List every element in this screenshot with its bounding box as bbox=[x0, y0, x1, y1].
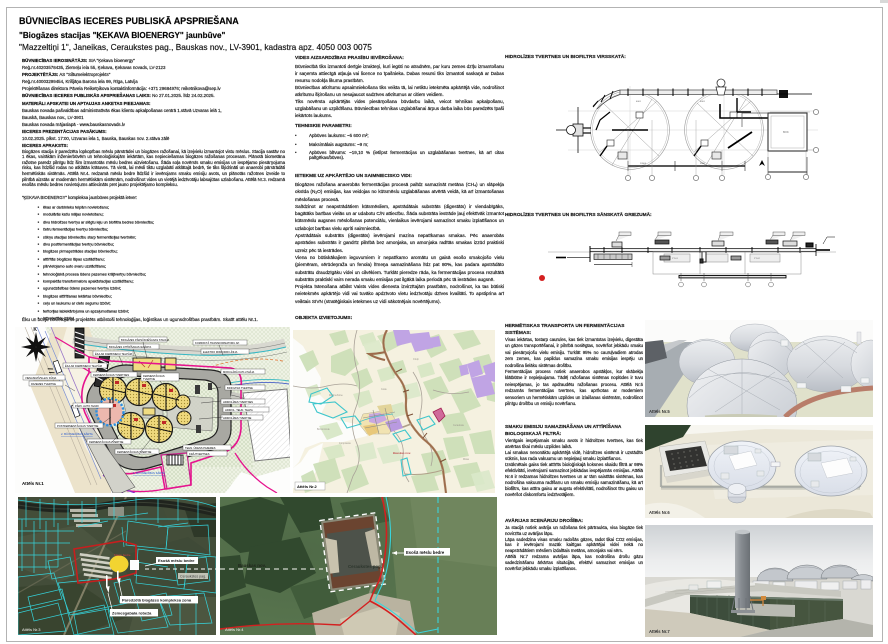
svg-text:Bauskas nov.: Bauskas nov. bbox=[238, 563, 266, 568]
svg-text:2. BŪVNIECĪBAS KĀRTA: 2. BŪVNIECĪBAS KĀRTA bbox=[61, 432, 93, 436]
svg-text:KOMPAKTĀ TRANSFORMATORU AP.: KOMPAKTĀ TRANSFORMATORU AP. bbox=[195, 341, 240, 345]
svg-text:TVERTNE: TVERTNE bbox=[143, 377, 155, 381]
svg-text:HIDROLĪZES TVERTNES: HIDROLĪZES TVERTNES bbox=[223, 400, 253, 404]
svg-text:FERMENTĀCIJAS TVERTNE: FERMENTĀCIJAS TVERTNE bbox=[117, 450, 152, 454]
svg-text:Esošā mēslu bedre: Esošā mēslu bedre bbox=[406, 550, 445, 555]
svg-text:K: K bbox=[33, 327, 37, 333]
svg-text:PT-01: PT-01 bbox=[672, 258, 679, 260]
svg-text:Attēls Nr.1: Attēls Nr.1 bbox=[22, 481, 44, 486]
svg-text:Attēls Nr.6: Attēls Nr.6 bbox=[649, 510, 670, 515]
svg-text:KRĀJTVERTNES: KRĀJTVERTNES bbox=[189, 452, 210, 456]
svg-text:BIOF.: BIOF. bbox=[783, 131, 790, 134]
svg-text:Cīruļi: Cīruļi bbox=[413, 358, 419, 361]
svg-text:Ceraukste: Ceraukste bbox=[453, 424, 465, 427]
svg-text:9000: 9000 bbox=[700, 163, 706, 165]
svg-text:MODULĀRĀ KATLU MĀJA: MODULĀRĀ KATLU MĀJA bbox=[223, 370, 254, 374]
svg-text:PAZEMES TVERTNE: PAZEMES TVERTNE bbox=[31, 382, 56, 386]
svg-text:1. BŪVNIECĪBAS KĀRTA: 1. BŪVNIECĪBAS KĀRTA bbox=[133, 471, 165, 475]
svg-text:4001: 4001 bbox=[636, 101, 642, 103]
svg-text:PT-02: PT-02 bbox=[754, 258, 761, 260]
svg-text:Mēslu bedre: Mēslu bedre bbox=[114, 553, 131, 557]
svg-text:Attēls Nr.3: Attēls Nr.3 bbox=[22, 627, 41, 632]
svg-text:Attēls Nr.5: Attēls Nr.5 bbox=[649, 409, 670, 414]
svg-text:Attēls Nr.2: Attēls Nr.2 bbox=[297, 484, 318, 489]
svg-text:Esošā mēslu bedre: Esošā mēslu bedre bbox=[158, 558, 195, 563]
svg-text:Jumpravas: Jumpravas bbox=[339, 442, 351, 445]
svg-text:POSTFERMENTĀCIJAS TVERTNE: POSTFERMENTĀCIJAS TVERTNE bbox=[57, 424, 99, 428]
svg-text:FERMENTĀCIJAS TVERTNE: FERMENTĀCIJAS TVERTNE bbox=[89, 440, 124, 444]
svg-text:VIENASDZĪVSLāJU DŪŅA: VIENASDZĪVSLāJU DŪŅA bbox=[25, 376, 57, 380]
svg-text:4001: 4001 bbox=[700, 101, 706, 103]
svg-text:Paredzētā biogāzes kompleksa z: Paredzētā biogāzes kompleksa zona bbox=[122, 598, 192, 603]
svg-text:ĒKA AR DARBINIEKU TELPĀM: ĒKA AR DARBINIEKU TELPĀM bbox=[65, 364, 102, 368]
svg-text:Bornsminde: Bornsminde bbox=[317, 428, 330, 431]
svg-text:Mūsa: Mūsa bbox=[463, 458, 470, 461]
svg-text:Bauskas nov.: Bauskas nov. bbox=[393, 451, 411, 455]
svg-text:Mazmežotne: Mazmežotne bbox=[329, 394, 343, 397]
svg-text:Attēls Nr.7: Attēls Nr.7 bbox=[649, 629, 670, 634]
svg-text:ĒKA AR DARBINIEKU TELPĀM: ĒKA AR DARBINIEKU TELPĀM bbox=[95, 352, 132, 356]
svg-text:BIOFILTRA TVERTNE: BIOFILTRA TVERTNE bbox=[227, 386, 253, 390]
svg-text:Ceraukstes pag.: Ceraukstes pag. bbox=[180, 575, 206, 579]
svg-text:Zemesgabala robeža: Zemesgabala robeža bbox=[112, 611, 152, 616]
svg-text:HIDROL. TEHN. TELPA: HIDROL. TEHN. TELPA bbox=[225, 408, 253, 412]
svg-text:Ceraukstes pag.: Ceraukstes pag. bbox=[348, 564, 382, 569]
svg-text:TEHN. ŪDENS PAZEMES: TEHN. ŪDENS PAZEMES bbox=[185, 446, 216, 450]
svg-text:FERMENTĀCIJAS TVERTNES: FERMENTĀCIJAS TVERTNES bbox=[93, 373, 129, 377]
svg-text:PĀRV. AUTO SVARI: PĀRV. AUTO SVARI bbox=[75, 404, 99, 408]
svg-text:12000: 12000 bbox=[640, 163, 647, 165]
svg-text:ELEKTRO MIKRODRI LĪNIJA: ELEKTRO MIKRODRI LĪNIJA bbox=[203, 350, 238, 354]
svg-text:Attēls Nr.4: Attēls Nr.4 bbox=[225, 627, 244, 632]
svg-text:Code: Code bbox=[381, 388, 387, 391]
svg-text:HIDROLĪZES TVERTNE: HIDROLĪZES TVERTNE bbox=[223, 416, 252, 420]
